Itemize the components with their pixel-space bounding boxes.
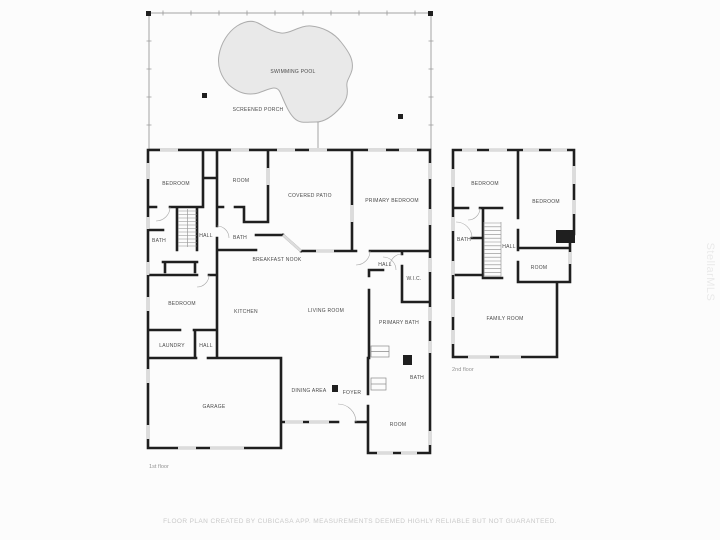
room-label: SCREENED PORCH	[233, 107, 284, 113]
room-label: BEDROOM	[471, 181, 499, 187]
second-floor-name: 2nd floor	[452, 367, 474, 373]
room-label: DINING AREA	[292, 388, 327, 394]
door-swing-arcs	[456, 208, 480, 238]
room-label: BATH	[233, 235, 247, 241]
room-label: BATH	[152, 238, 166, 244]
second-floor-labels: BEDROOMBEDROOMBATHHALLROOMFAMILY ROOM	[457, 181, 560, 322]
room-label: LIVING ROOM	[308, 308, 344, 314]
room-label: HALL	[502, 244, 516, 250]
room-label: FOYER	[343, 390, 362, 396]
floor-plan-page: SWIMMING POOLSCREENED PORCH BEDROOMROOMC…	[0, 0, 720, 540]
floor-plan-drawing: SWIMMING POOLSCREENED PORCH BEDROOMROOMC…	[0, 0, 720, 540]
second-floor-plan: BEDROOMBEDROOMBATHHALLROOMFAMILY ROOM 2n…	[452, 150, 575, 373]
room-label: KITCHEN	[234, 309, 258, 315]
room-label: BATH	[410, 375, 424, 381]
porch-corner-post	[146, 11, 151, 16]
room-label: PRIMARY BATH	[379, 320, 419, 326]
wall-notch	[556, 230, 575, 243]
porch-post	[398, 114, 403, 119]
room-label: COVERED PATIO	[288, 193, 332, 199]
first-floor-plan: BEDROOMROOMCOVERED PATIOPRIMARY BEDROOMB…	[148, 150, 430, 470]
room-label: HALL	[378, 262, 392, 268]
room-label: HALL	[199, 343, 213, 349]
room-label: ROOM	[390, 422, 407, 428]
room-label: ROOM	[233, 178, 250, 184]
foyer-column	[332, 385, 338, 392]
room-label: PRIMARY BEDROOM	[365, 198, 419, 204]
staircase-treads	[484, 223, 501, 276]
room-label: W.I.C.	[406, 276, 421, 282]
room-label: BEDROOM	[162, 181, 190, 187]
first-floor-name: 1st floor	[149, 464, 169, 470]
room-label: BATH	[457, 237, 471, 243]
bath-fixture	[403, 355, 412, 365]
room-label: BEDROOM	[532, 199, 560, 205]
room-label: BEDROOM	[168, 301, 196, 307]
disclaimer-text: FLOOR PLAN CREATED BY CUBICASA APP. MEAS…	[163, 518, 557, 525]
room-label: HALL	[199, 233, 213, 239]
room-label: BREAKFAST NOOK	[253, 257, 302, 263]
porch-corner-post	[428, 11, 433, 16]
screened-porch: SWIMMING POOLSCREENED PORCH	[146, 11, 434, 150]
mls-watermark: StellarMLS	[704, 243, 716, 302]
room-label: SWIMMING POOL	[270, 69, 315, 75]
room-label: LAUNDRY	[159, 343, 185, 349]
room-label: ROOM	[531, 265, 548, 271]
room-label: FAMILY ROOM	[486, 316, 523, 322]
porch-post	[202, 93, 207, 98]
first-floor-labels: BEDROOMROOMCOVERED PATIOPRIMARY BEDROOMB…	[152, 178, 424, 428]
room-label: GARAGE	[203, 404, 226, 410]
